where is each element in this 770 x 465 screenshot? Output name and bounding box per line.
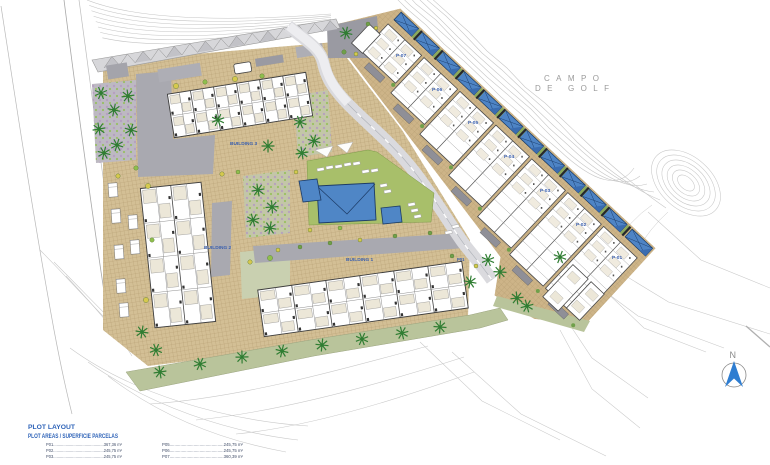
svg-text:P01: P01 <box>457 257 465 262</box>
svg-text:P-02: P-02 <box>576 222 586 228</box>
svg-text:P02...........................: P02.....................................… <box>46 448 123 453</box>
svg-text:P-04: P-04 <box>504 154 514 160</box>
svg-text:P03...........................: P03.....................................… <box>46 454 123 459</box>
svg-text:P07...........................: P07.....................................… <box>162 454 244 459</box>
svg-text:BUILDING 1: BUILDING 1 <box>346 257 374 263</box>
svg-text:P-01: P-01 <box>612 255 622 261</box>
svg-text:PLOT AREAS / SUPERFICIE PARCEL: PLOT AREAS / SUPERFICIE PARCELAS <box>28 434 118 440</box>
svg-text:DE: DE <box>535 84 559 93</box>
svg-text:BUILDING 3: BUILDING 3 <box>230 141 258 147</box>
svg-text:P-03: P-03 <box>540 188 550 194</box>
svg-text:P-05: P-05 <box>468 120 478 126</box>
svg-text:CAMPO: CAMPO <box>544 74 605 83</box>
svg-text:P-07: P-07 <box>396 53 406 59</box>
svg-text:P06...........................: P06.....................................… <box>162 448 244 453</box>
svg-text:GOLF: GOLF <box>568 84 615 93</box>
svg-text:BUILDING 2: BUILDING 2 <box>204 245 232 251</box>
svg-text:N: N <box>730 350 737 360</box>
svg-text:P-06: P-06 <box>432 87 442 93</box>
svg-text:P05...........................: P05.....................................… <box>162 442 244 447</box>
svg-text:PLOT LAYOUT: PLOT LAYOUT <box>28 425 75 431</box>
svg-text:P01...........................: P01.....................................… <box>46 442 123 447</box>
